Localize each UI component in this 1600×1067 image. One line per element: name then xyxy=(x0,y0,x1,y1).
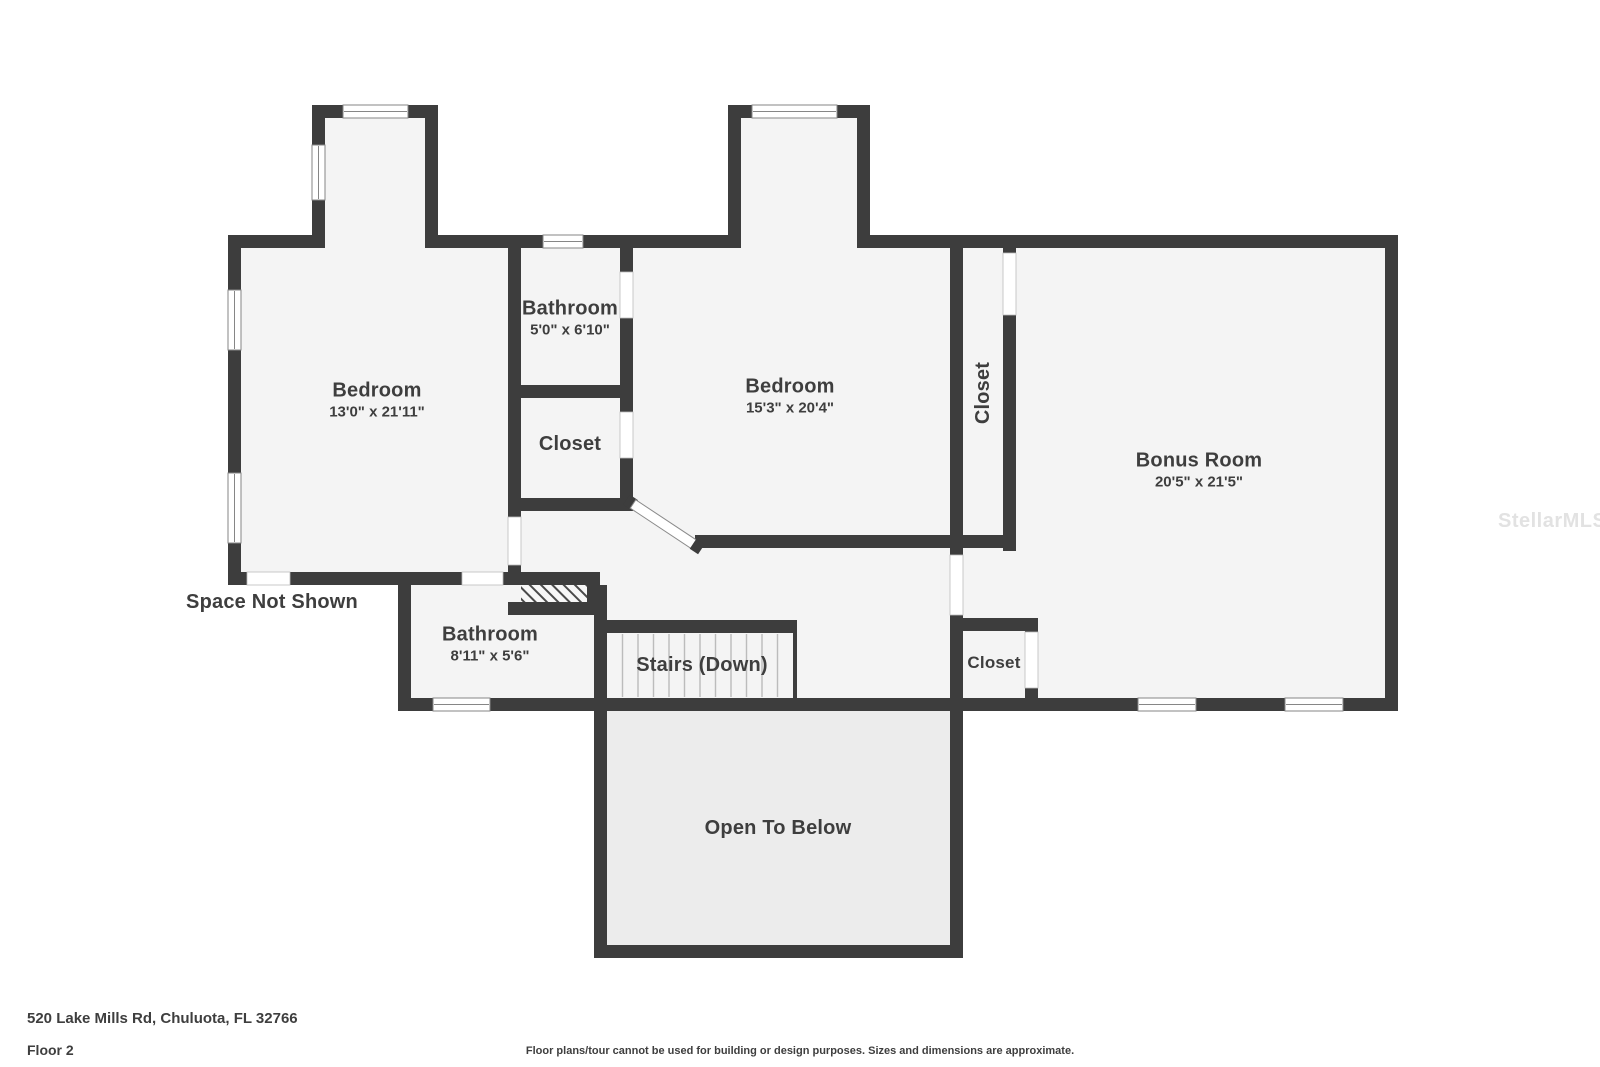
disclaimer-text: Floor plans/tour cannot be used for buil… xyxy=(0,1045,1600,1057)
room-dimensions: 15'3" x 20'4" xyxy=(745,400,834,418)
room-name: Closet xyxy=(967,651,1020,675)
open-to-below-label: Open To Below xyxy=(705,816,852,840)
room-dimensions: 13'0" x 21'11" xyxy=(329,404,425,422)
floor-plan-drawing xyxy=(0,0,1600,1067)
room-name: Bathroom xyxy=(522,297,618,321)
space-not-shown-label: Space Not Shown xyxy=(186,590,358,614)
room-dimensions: 20'5" x 21'5" xyxy=(1136,474,1262,492)
room-name: Stairs (Down) xyxy=(636,653,768,677)
room-label-bonus-room: Bonus Room 20'5" x 21'5" xyxy=(1136,449,1262,492)
room-name: Bedroom xyxy=(745,375,834,399)
room-name: Closet xyxy=(971,362,995,424)
annotation-text: Space Not Shown xyxy=(186,590,358,614)
stellar-mls-watermark: StellarMLS xyxy=(1498,510,1600,533)
room-label-bathroom-bottom: Bathroom 8'11" x 5'6" xyxy=(442,623,538,666)
room-label-bedroom-left: Bedroom 13'0" x 21'11" xyxy=(329,379,425,422)
room-dimensions: 5'0" x 6'10" xyxy=(522,322,618,340)
room-name: Closet xyxy=(539,432,601,456)
room-label-closet-top: Closet xyxy=(539,432,601,456)
room-name: Bathroom xyxy=(442,623,538,647)
hatched-chase-area xyxy=(521,585,587,602)
room-label-closet-tall: Closet xyxy=(971,362,995,424)
stairs-label: Stairs (Down) xyxy=(636,653,768,677)
room-label-bathroom-top: Bathroom 5'0" x 6'10" xyxy=(522,297,618,340)
floor-plan-page: Bedroom 13'0" x 21'11" Bathroom 5'0" x 6… xyxy=(0,0,1600,1067)
room-name: Bedroom xyxy=(329,379,425,403)
annotation-text: Open To Below xyxy=(705,816,852,840)
room-name: Bonus Room xyxy=(1136,449,1262,473)
room-label-closet-bottom: Closet xyxy=(967,651,1020,675)
room-label-bedroom-middle: Bedroom 15'3" x 20'4" xyxy=(745,375,834,418)
property-address: 520 Lake Mills Rd, Chuluota, FL 32766 xyxy=(27,1010,298,1027)
room-dimensions: 8'11" x 5'6" xyxy=(442,648,538,666)
